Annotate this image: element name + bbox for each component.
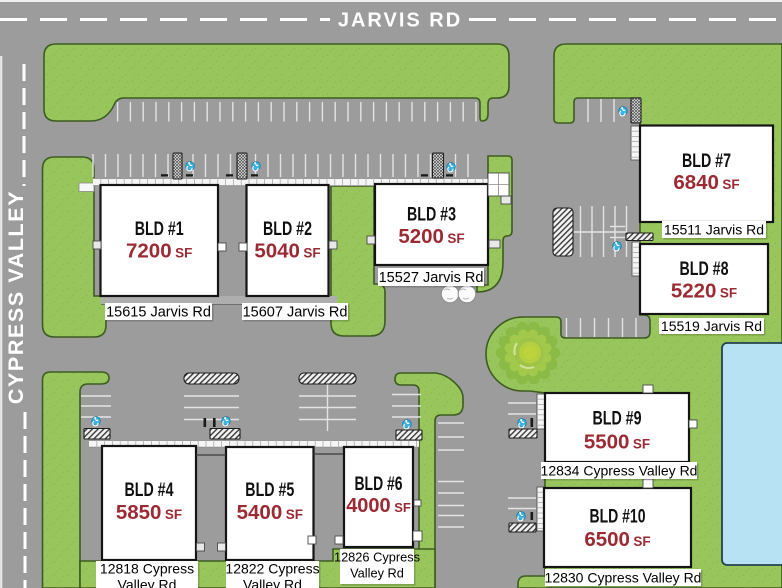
svg-text:BLD #4: BLD #4 xyxy=(125,479,174,501)
svg-text:BLD #5: BLD #5 xyxy=(245,479,294,501)
svg-text:15527 Jarvis Rd: 15527 Jarvis Rd xyxy=(379,270,484,286)
svg-text:15607 Jarvis Rd: 15607 Jarvis Rd xyxy=(243,305,348,321)
svg-text:BLD #7: BLD #7 xyxy=(682,150,731,172)
svg-text:15615 Jarvis Rd: 15615 Jarvis Rd xyxy=(106,305,211,321)
svg-text:12822 Cypress: 12822 Cypress xyxy=(225,561,319,577)
svg-text:BLD #10: BLD #10 xyxy=(590,506,646,528)
svg-text:BLD #8: BLD #8 xyxy=(680,258,729,280)
svg-text:12830 Cypress Valley Rd: 12830 Cypress Valley Rd xyxy=(545,570,702,586)
svg-text:BLD #6: BLD #6 xyxy=(355,473,403,495)
svg-text:Valley Rd: Valley Rd xyxy=(350,566,404,581)
svg-text:JARVIS RD: JARVIS RD xyxy=(338,10,462,32)
svg-text:15511 Jarvis Rd: 15511 Jarvis Rd xyxy=(664,222,764,238)
svg-text:12826 Cypress: 12826 Cypress xyxy=(334,550,420,565)
svg-text:BLD #2: BLD #2 xyxy=(263,218,312,240)
svg-text:12834 Cypress Valley Rd: 12834 Cypress Valley Rd xyxy=(541,463,698,479)
svg-text:BLD #3: BLD #3 xyxy=(407,204,456,226)
svg-text:BLD #9: BLD #9 xyxy=(593,408,642,430)
svg-text:Valley Rd: Valley Rd xyxy=(118,577,177,588)
svg-text:CYPRESS VALLEY: CYPRESS VALLEY xyxy=(4,190,28,404)
svg-text:15519 Jarvis Rd: 15519 Jarvis Rd xyxy=(661,318,762,334)
svg-text:BLD #1: BLD #1 xyxy=(135,218,184,240)
svg-text:12818 Cypress: 12818 Cypress xyxy=(100,561,194,577)
svg-text:Valley Rd: Valley Rd xyxy=(243,577,302,588)
